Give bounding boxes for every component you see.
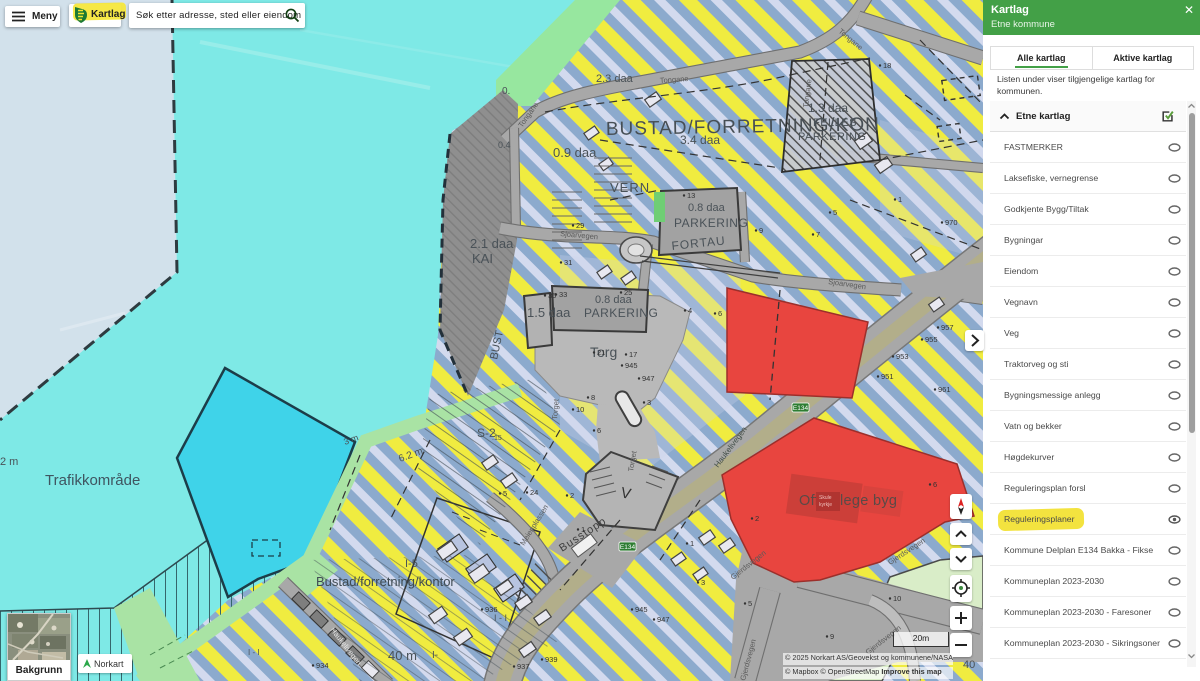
svg-text:1: 1	[581, 525, 585, 534]
svg-text:40 m: 40 m	[388, 648, 417, 663]
svg-text:.15: .15	[492, 435, 502, 442]
svg-text:29: 29	[576, 221, 584, 230]
svg-text:Trafikkområde: Trafikkområde	[45, 472, 140, 489]
svg-text:Torget: Torget	[550, 398, 561, 420]
svg-text:0.9 daa: 0.9 daa	[553, 145, 597, 160]
svg-text:955: 955	[925, 335, 938, 344]
svg-text:21: 21	[597, 348, 605, 357]
svg-text:VERN: VERN	[610, 180, 650, 195]
svg-text:I-5: I-5	[405, 558, 418, 570]
svg-text:1: 1	[898, 195, 902, 204]
svg-text:6: 6	[933, 480, 937, 489]
svg-text:FELLES: FELLES	[813, 117, 857, 129]
svg-text:5: 5	[833, 208, 837, 217]
svg-text:3: 3	[647, 398, 651, 407]
svg-text:2: 2	[570, 491, 574, 500]
svg-text:kyrkje: kyrkje	[819, 502, 832, 508]
svg-text:2.3 daa: 2.3 daa	[596, 73, 634, 85]
svg-text:PARKERING: PARKERING	[584, 306, 658, 320]
svg-text:1.3 daa: 1.3 daa	[808, 101, 848, 115]
svg-text:945: 945	[625, 361, 638, 370]
svg-text:0.8 daa: 0.8 daa	[688, 202, 726, 214]
svg-text:936: 936	[485, 605, 498, 614]
svg-text:1.5 daa: 1.5 daa	[527, 305, 571, 320]
svg-text:970: 970	[945, 218, 958, 227]
svg-text:937: 937	[517, 662, 530, 671]
svg-text:10: 10	[893, 594, 901, 603]
svg-text:10: 10	[576, 405, 584, 414]
svg-text:9: 9	[759, 226, 763, 235]
svg-text:I-: I-	[432, 650, 438, 661]
svg-text:7: 7	[816, 230, 820, 239]
svg-text:E134: E134	[793, 405, 809, 412]
svg-text:951: 951	[881, 372, 894, 381]
svg-text:25: 25	[624, 288, 632, 297]
svg-text:31: 31	[564, 258, 572, 267]
svg-text:2 m: 2 m	[0, 456, 18, 468]
svg-text:KAI: KAI	[472, 251, 493, 266]
svg-text:6: 6	[718, 309, 722, 318]
svg-text:945: 945	[635, 605, 648, 614]
svg-text:947: 947	[657, 615, 670, 624]
svg-text:I - I: I - I	[494, 613, 507, 623]
svg-text:947: 947	[642, 374, 655, 383]
svg-text:5: 5	[748, 599, 752, 608]
svg-text:957: 957	[941, 323, 954, 332]
svg-text:PARKERING: PARKERING	[798, 131, 866, 143]
svg-text:4: 4	[688, 306, 692, 315]
svg-text:PARKERING: PARKERING	[674, 216, 748, 230]
svg-text:33: 33	[559, 290, 567, 299]
svg-text:1: 1	[690, 539, 694, 548]
svg-text:0.4: 0.4	[498, 140, 511, 150]
svg-text:961: 961	[938, 385, 951, 394]
svg-text:Offentlege byg: Offentlege byg	[799, 493, 897, 509]
svg-text:3: 3	[701, 578, 705, 587]
svg-text:24: 24	[530, 488, 538, 497]
svg-text:40: 40	[963, 659, 975, 671]
svg-text:939: 939	[545, 655, 558, 664]
svg-text:E134: E134	[620, 544, 636, 551]
svg-text:0.: 0.	[502, 86, 510, 97]
svg-text:2: 2	[755, 514, 759, 523]
svg-text:6: 6	[597, 426, 601, 435]
svg-text:2.1 daa: 2.1 daa	[470, 236, 514, 251]
svg-text:3.4 daa: 3.4 daa	[680, 133, 720, 147]
svg-text:13: 13	[687, 191, 695, 200]
svg-text:5: 5	[503, 489, 507, 498]
svg-text:9: 9	[830, 632, 834, 641]
svg-text:8: 8	[591, 393, 595, 402]
svg-text:I - I: I - I	[248, 648, 260, 657]
svg-text:Bustad/forretning/kontor: Bustad/forretning/kontor	[316, 574, 455, 589]
svg-text:953: 953	[896, 352, 909, 361]
svg-text:35: 35	[548, 291, 556, 300]
svg-text:934: 934	[316, 661, 329, 670]
svg-text:18: 18	[883, 61, 891, 70]
svg-text:17: 17	[629, 350, 637, 359]
svg-text:Skule: Skule	[819, 495, 832, 501]
